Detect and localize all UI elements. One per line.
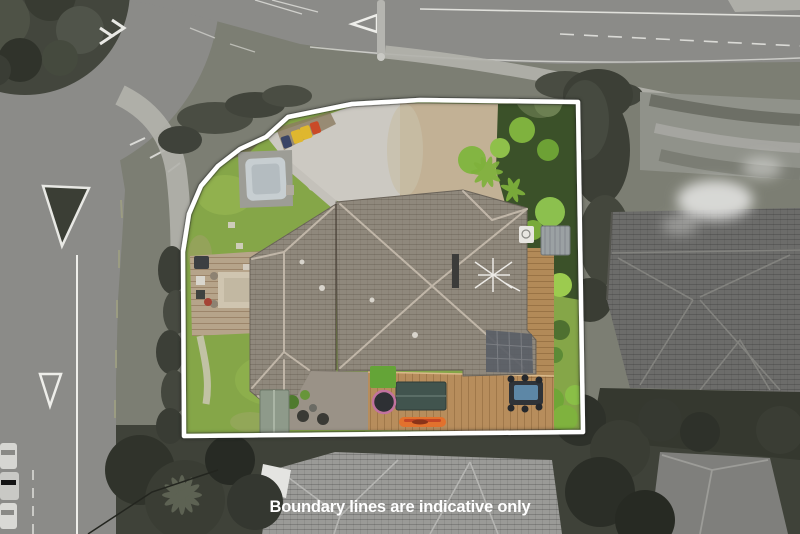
- trampoline: [373, 391, 395, 413]
- roof-skylight: [452, 254, 459, 288]
- ac-unit: [519, 226, 534, 243]
- artificial-grass-patch: [370, 366, 396, 388]
- storage-shed-teal: [396, 382, 446, 410]
- aerial-photo: Boundary lines are indicative only: [0, 0, 800, 534]
- neighbor-house-bottom: [258, 452, 562, 534]
- kayak: [399, 417, 446, 427]
- patio-chair: [317, 413, 329, 425]
- garden-shed-green: [260, 390, 289, 434]
- garden-shed-gray: [541, 226, 570, 255]
- parked-cars: [0, 443, 19, 529]
- outdoor-table-set: [508, 375, 544, 413]
- solar-panels: [486, 330, 533, 373]
- listing-photo-frame: Boundary lines are indicative only: [0, 0, 800, 534]
- footpath-corner: [728, 0, 800, 12]
- power-pole: [377, 0, 385, 61]
- patio-chair: [297, 410, 309, 422]
- caption: Boundary lines are indicative only: [270, 498, 532, 516]
- bbq-grill: [194, 256, 209, 269]
- spa-pool: [238, 150, 294, 208]
